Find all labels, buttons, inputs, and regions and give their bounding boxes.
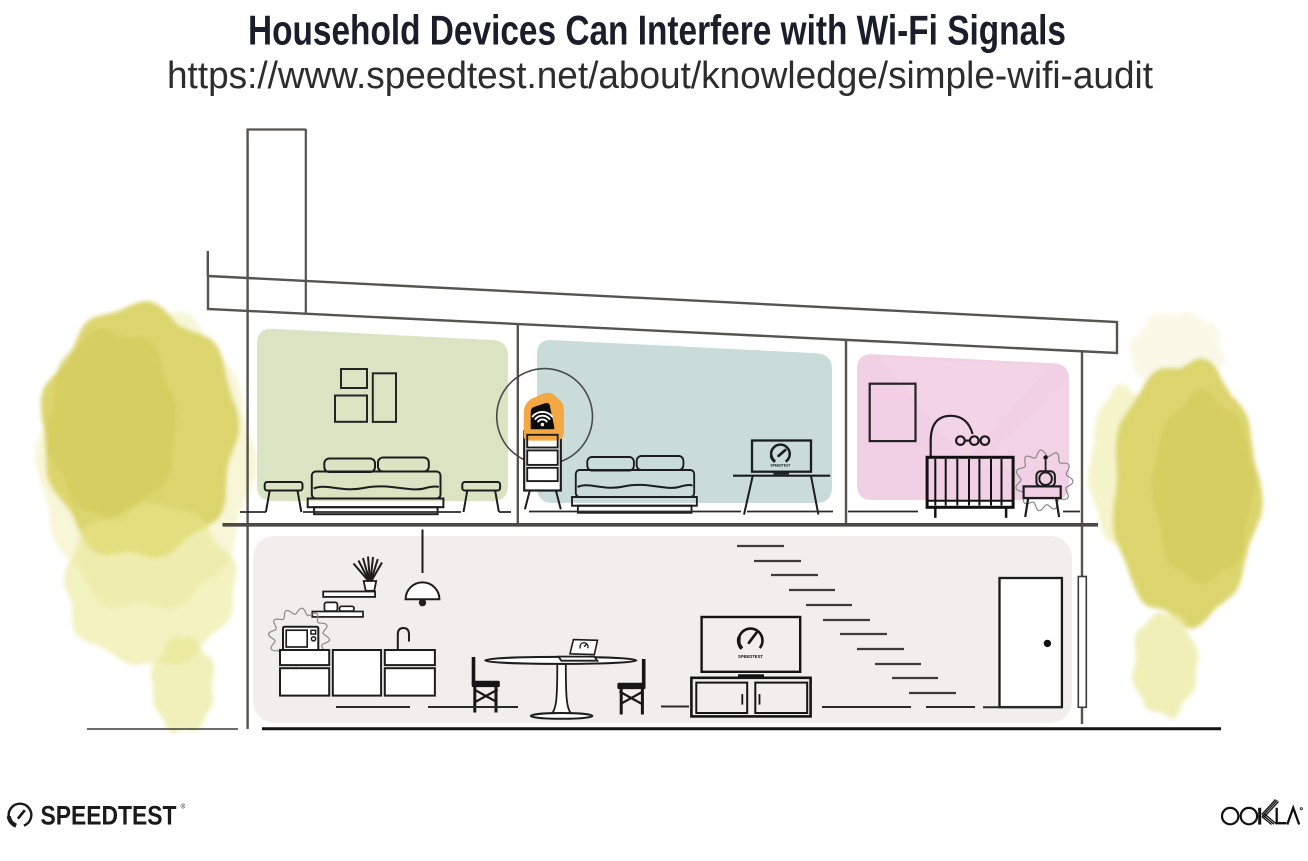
svg-text:®: ®: [181, 803, 186, 811]
svg-text:https://www.speedtest.net/abou: https://www.speedtest.net/about/knowledg…: [167, 55, 1153, 97]
svg-text:SPEEDTEST: SPEEDTEST: [41, 801, 177, 831]
svg-text:Household Devices Can Interfer: Household Devices Can Interfere with Wi-…: [248, 7, 1066, 54]
svg-text:SPEEDTEST: SPEEDTEST: [738, 654, 763, 659]
svg-text:SPEEDTEST: SPEEDTEST: [770, 464, 791, 468]
